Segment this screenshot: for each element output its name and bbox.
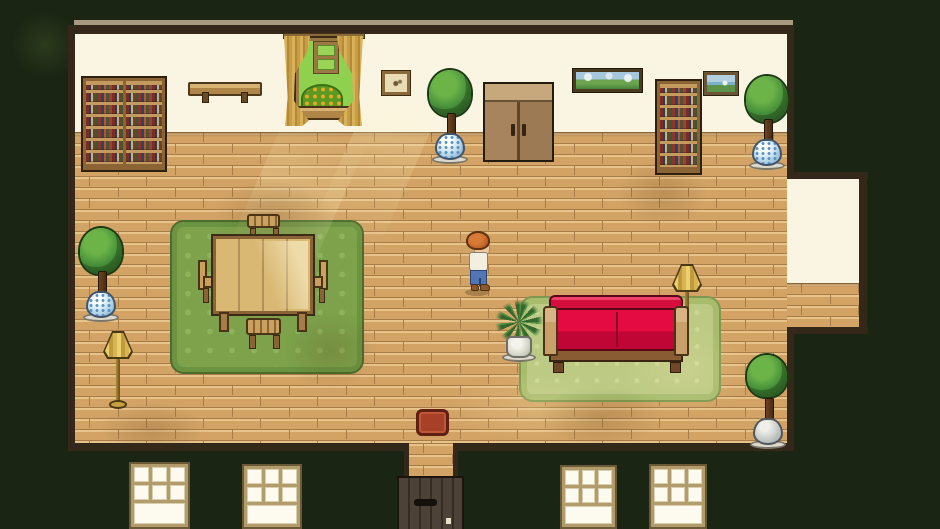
tree-foliage: [80, 228, 122, 274]
white-door[interactable]: [560, 465, 617, 529]
chair-top[interactable]: [247, 214, 280, 228]
bookshelf[interactable]: [657, 81, 700, 173]
picture-sketch-mark: [391, 79, 403, 88]
lamp-shade: [103, 331, 133, 359]
wall-shelf[interactable]: [188, 82, 262, 96]
bookshelf-books: [86, 81, 123, 167]
character-shoe: [480, 284, 490, 291]
character-shirt: [469, 252, 488, 271]
wardrobe-doors: [485, 102, 552, 160]
wardrobe-handle: [511, 124, 515, 136]
red-couch[interactable]: [543, 295, 689, 373]
door-handle-icon: [414, 499, 437, 506]
character-hair: [466, 231, 490, 250]
double-bookshelf[interactable]: [83, 78, 165, 170]
entry-door[interactable]: [397, 476, 464, 529]
chair-leg: [319, 288, 325, 303]
couch-armrest-left: [543, 306, 558, 356]
alcove-border-bottom: [787, 327, 868, 334]
tree-foliage: [429, 70, 471, 116]
table-sheen: [218, 241, 308, 309]
lamp-pole: [116, 359, 120, 403]
potted-tree[interactable]: [79, 228, 123, 322]
lamp-shade: [672, 264, 702, 292]
window-upper-panes: [313, 41, 339, 74]
potted-tree[interactable]: [745, 76, 789, 170]
wall-top-trim: [68, 25, 794, 34]
tree-foliage: [747, 355, 787, 397]
couch-foot: [670, 362, 681, 373]
couch-cushion-divider: [616, 312, 618, 347]
wardrobe-handle: [522, 124, 526, 136]
wall-shelf-leg: [241, 92, 248, 103]
tree-pot: [753, 418, 783, 445]
doormat[interactable]: [416, 409, 449, 436]
small-picture: [382, 71, 410, 95]
wardrobe-top: [485, 84, 552, 102]
wall-shelf-leg: [202, 92, 209, 103]
alcove-border-top: [787, 172, 868, 179]
door-keyhole: [446, 518, 451, 524]
curtained-window: [283, 32, 364, 128]
wardrobe[interactable]: [483, 82, 554, 162]
tree-pot: [86, 291, 116, 318]
doorway-border-left: [404, 443, 409, 480]
tree-foliage: [746, 76, 788, 122]
potted-tree[interactable]: [428, 70, 472, 164]
chair-leg: [273, 335, 280, 349]
fern-pot: [506, 336, 532, 358]
character-pants: [470, 270, 487, 285]
framed-picture: [704, 72, 738, 95]
floor-shadow: [515, 375, 685, 460]
couch-cushions: [555, 308, 677, 351]
alcove-wall: [787, 179, 859, 283]
bookshelf-books: [660, 84, 697, 170]
table-leg: [219, 312, 229, 332]
game-viewport: [0, 0, 940, 529]
chair-bottom[interactable]: [246, 318, 281, 335]
alcove-border-right: [859, 172, 867, 334]
white-door[interactable]: [649, 464, 707, 529]
couch-foot: [553, 362, 564, 373]
landscape-painting: [573, 69, 642, 92]
couch-armrest-right: [674, 306, 689, 356]
table-leg: [297, 312, 307, 332]
white-door[interactable]: [242, 464, 302, 529]
alcove-wall-shadow: [787, 283, 859, 287]
dining-table[interactable]: [213, 236, 313, 314]
player-character: [461, 228, 493, 296]
chair-leg: [249, 335, 256, 349]
border-left: [68, 25, 75, 450]
white-door[interactable]: [129, 462, 190, 529]
tree-pot: [435, 133, 465, 160]
character-shoe: [471, 284, 479, 291]
fern-plant[interactable]: [495, 300, 543, 362]
floor-lamp[interactable]: [102, 331, 134, 411]
potted-tree-gray[interactable]: [746, 355, 790, 449]
bookshelf-books: [123, 81, 163, 167]
chair-leg: [203, 288, 209, 303]
tree-pot: [752, 139, 782, 166]
alcove-floor: [787, 283, 859, 327]
lamp-base: [109, 400, 127, 409]
